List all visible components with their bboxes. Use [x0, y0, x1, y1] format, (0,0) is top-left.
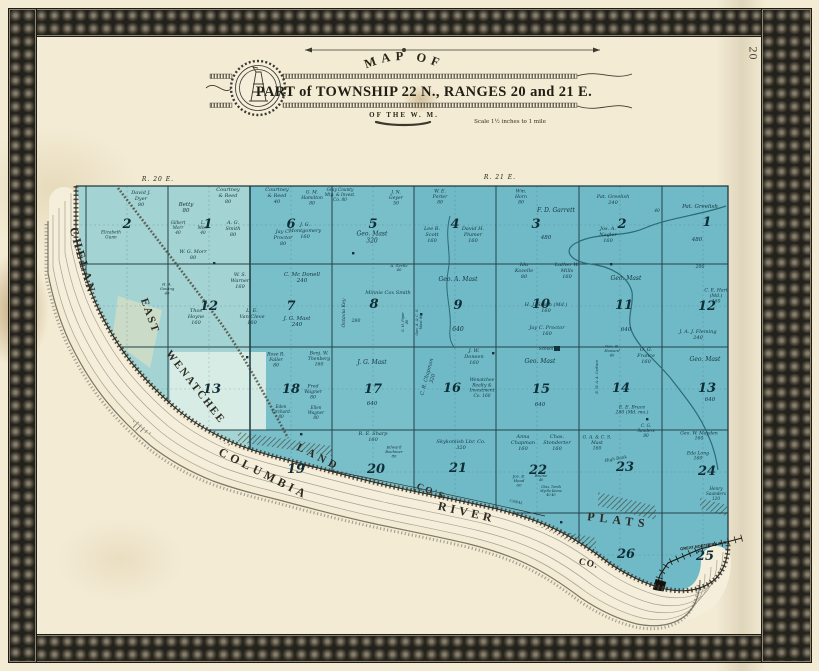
section-number: 23: [615, 460, 634, 475]
ornate-border-left: [8, 8, 37, 663]
plat-map: David J.Dyer80ElizabethGunnBetty80Gilber…: [0, 0, 819, 671]
cartouche-rule-bottom: [283, 103, 577, 108]
parcel-label: 280: [351, 318, 361, 324]
section-number: 8: [369, 297, 378, 312]
parcel-label: 40: [653, 208, 660, 213]
section-number: 2: [616, 217, 626, 232]
title-main-text: PART of TOWNSHIP 22 N., RANGES 20 and 21…: [256, 84, 592, 100]
parcel-label: Pat. Greelish: [681, 204, 718, 210]
section-number: 10: [532, 297, 550, 312]
parcel-label: J. G. Mast: [355, 359, 387, 366]
ornate-border-right: [761, 8, 812, 663]
house-marker: [646, 418, 648, 420]
parcel-label: 200: [695, 264, 705, 270]
parcel-label: E. E. Bruce280 (Md. mo.): [615, 404, 649, 415]
house-marker: [213, 262, 215, 264]
section-number: 3: [531, 217, 540, 232]
parcel-label: 640: [452, 326, 464, 333]
map-land-area: [76, 186, 728, 606]
range-label: R. 21 E.: [483, 174, 516, 181]
house-marker: [560, 521, 562, 523]
parcel-label: Geo. Mast: [525, 358, 556, 365]
section-number: 11: [615, 298, 633, 313]
ornate-border-top: [8, 8, 812, 37]
parcel-label: 640: [367, 401, 378, 407]
section-number: 25: [695, 549, 714, 564]
parcel-label: School: [539, 346, 554, 351]
parcel-label: Octavia Key: [341, 298, 347, 327]
section-number: 7: [286, 299, 295, 314]
parcel-label: 640: [621, 327, 632, 333]
section-number: 20: [366, 462, 385, 477]
range-label: R. 20 E.: [141, 176, 174, 183]
parcel-label: 480: [691, 237, 703, 243]
section-number: 12: [698, 299, 716, 314]
house-marker: [610, 263, 612, 265]
section-number: 19: [287, 462, 305, 477]
school-house-marker: [554, 346, 560, 351]
parcel-label: 480: [540, 235, 552, 241]
ornate-border-bottom: [8, 634, 812, 663]
cartouche-flourish-left: [206, 85, 232, 90]
cartouche-rule-top: [283, 74, 577, 79]
parcel-label: 640: [535, 402, 546, 408]
title-cartouche: MAP OF PART of TOWNSHIP 22 N., RANGES 20…: [206, 48, 632, 126]
map-of-arc-text: MAP OF: [362, 49, 446, 71]
parcel-label: 640: [705, 397, 716, 403]
section-number: 1: [203, 217, 212, 232]
section-number: 22: [528, 463, 547, 478]
house-marker: [352, 252, 354, 254]
title-sub-text: OF THE W. M.: [369, 111, 439, 119]
parcel-label: Minnie Cox Smith: [364, 290, 411, 296]
house-marker: [300, 433, 302, 435]
section-number: 14: [612, 381, 630, 396]
parcel-label: Geo. Mast: [690, 356, 721, 363]
section-number: 6: [286, 217, 295, 232]
parcel-label: F. D. Garrett: [536, 207, 576, 214]
section-number: 21: [448, 461, 467, 476]
section-number: 9: [453, 298, 462, 313]
section-number: 17: [364, 382, 382, 397]
section-number: 26: [616, 547, 635, 562]
section-number: 13: [698, 381, 716, 396]
parcel-label: Geo. A. Mast: [438, 276, 478, 283]
house-marker: [246, 356, 248, 358]
section-number: 5: [368, 217, 377, 232]
section-number: 15: [532, 382, 550, 397]
section-number: 12: [200, 299, 218, 314]
house-marker: [492, 352, 494, 354]
section-number: 18: [282, 382, 300, 397]
section-number: 16: [443, 381, 461, 396]
section-number: 4: [450, 217, 459, 232]
section-number: 1: [702, 215, 711, 230]
parcel-label: Geo. Mast: [611, 275, 642, 282]
title-banner-rule: [376, 122, 430, 125]
parcel-label: E. W. & A. Carlson: [595, 360, 599, 395]
scale-text: Scale 1½ inches to 1 mile: [474, 118, 546, 125]
page-number: 20: [746, 47, 761, 61]
section-number: 24: [697, 464, 716, 479]
atlas-page: David J.Dyer80ElizabethGunnBetty80Gilber…: [0, 0, 819, 671]
section-number: 2: [121, 217, 131, 232]
